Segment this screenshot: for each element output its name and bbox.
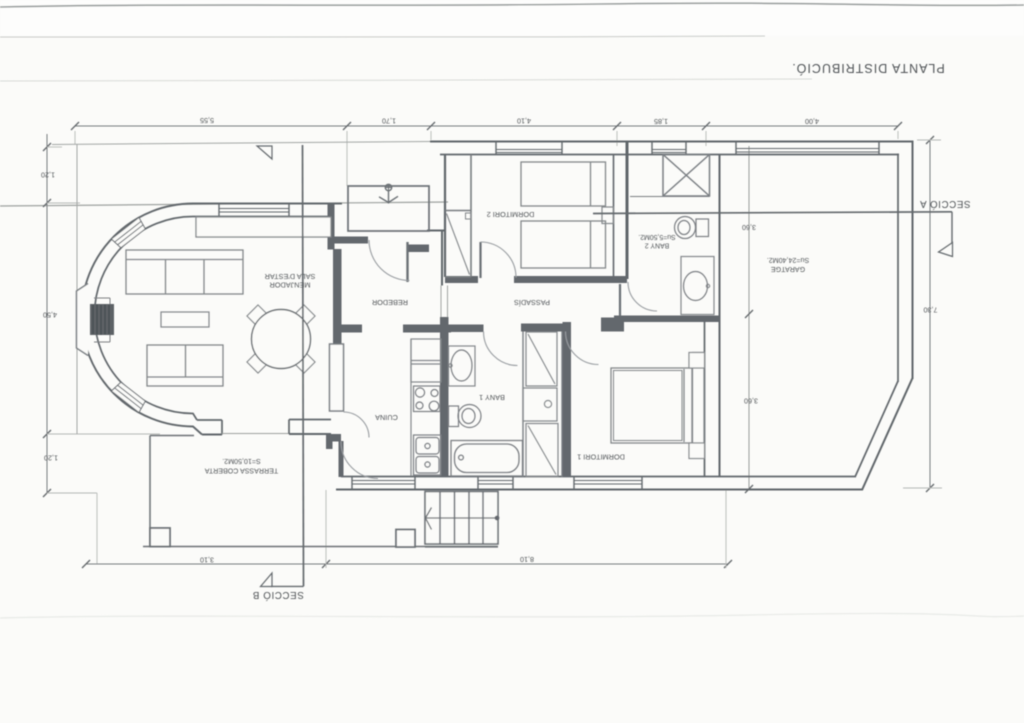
svg-text:PLANTA DISTRIBUCIÓ.: PLANTA DISTRIBUCIÓ. bbox=[791, 61, 945, 76]
svg-text:BANY 2: BANY 2 bbox=[645, 242, 670, 249]
svg-text:3,10: 3,10 bbox=[200, 555, 214, 564]
svg-text:MENJADOR: MENJADOR bbox=[270, 281, 311, 290]
svg-text:DORMITORI 2: DORMITORI 2 bbox=[487, 210, 535, 219]
svg-text:BANY 1: BANY 1 bbox=[479, 393, 505, 402]
svg-text:SECCIÓ A: SECCIÓ A bbox=[919, 198, 970, 209]
svg-text:PASSADÍS: PASSADÍS bbox=[514, 298, 550, 307]
svg-text:Su=24,40M2.: Su=24,40M2. bbox=[767, 256, 809, 264]
svg-text:3,60: 3,60 bbox=[744, 396, 758, 405]
svg-text:SALA D'ESTAR: SALA D'ESTAR bbox=[265, 272, 316, 281]
svg-text:S=10,50M2.: S=10,50M2. bbox=[222, 457, 260, 465]
svg-text:CUINA: CUINA bbox=[375, 413, 398, 422]
svg-text:SECCIÓ B: SECCIÓ B bbox=[252, 589, 304, 600]
svg-text:1,20: 1,20 bbox=[44, 453, 58, 462]
svg-text:DORMITORI 1: DORMITORI 1 bbox=[577, 452, 625, 461]
svg-text:1,85: 1,85 bbox=[654, 117, 668, 126]
svg-text:TERRASSA COBERTA: TERRASSA COBERTA bbox=[205, 466, 279, 474]
svg-text:8,10: 8,10 bbox=[520, 555, 534, 564]
svg-text:Su=5,50M2.: Su=5,50M2. bbox=[638, 233, 675, 240]
svg-text:5,55: 5,55 bbox=[200, 116, 214, 125]
svg-text:GARATGE: GARATGE bbox=[771, 265, 805, 273]
svg-text:7,30: 7,30 bbox=[924, 305, 938, 314]
svg-text:REBEDOR: REBEDOR bbox=[372, 298, 408, 307]
svg-text:1,20: 1,20 bbox=[41, 170, 55, 179]
svg-text:3,60: 3,60 bbox=[742, 223, 756, 232]
svg-text:4,50: 4,50 bbox=[43, 310, 57, 319]
svg-text:4,10: 4,10 bbox=[517, 116, 531, 125]
svg-text:1,70: 1,70 bbox=[382, 116, 396, 125]
svg-text:4,00: 4,00 bbox=[805, 117, 819, 126]
